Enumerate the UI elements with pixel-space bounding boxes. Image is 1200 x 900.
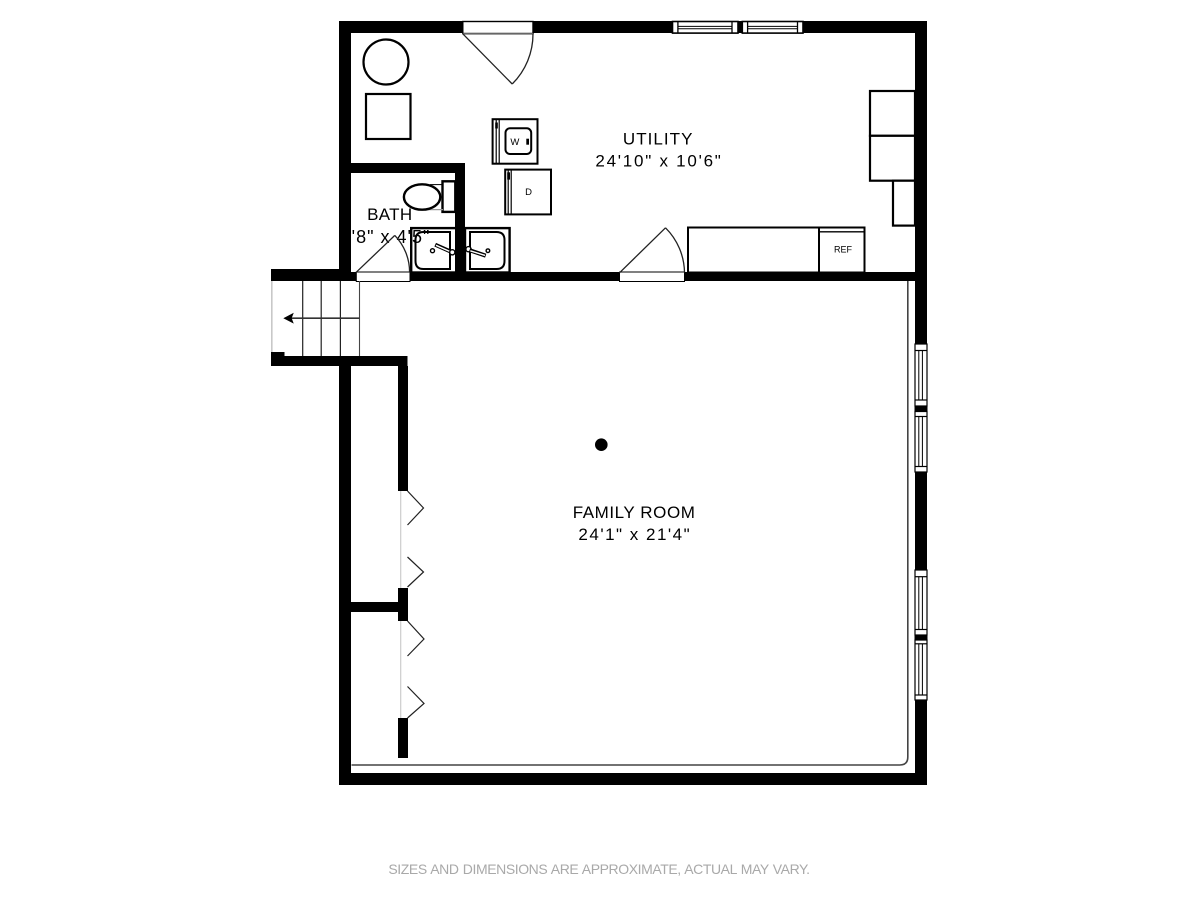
svg-text:REF: REF: [834, 245, 853, 255]
svg-text:FAMILY ROOM: FAMILY ROOM: [573, 503, 696, 522]
svg-text:D: D: [525, 187, 532, 198]
svg-text:W: W: [510, 137, 519, 148]
svg-text:SIZES AND DIMENSIONS ARE APPRO: SIZES AND DIMENSIONS ARE APPROXIMATE, AC…: [388, 861, 809, 877]
svg-text:BATH: BATH: [367, 205, 412, 224]
svg-text:UTILITY: UTILITY: [623, 130, 694, 149]
svg-text:24'10" x 10'6": 24'10" x 10'6": [595, 152, 722, 171]
svg-text:24'1" x 21'4": 24'1" x 21'4": [578, 525, 691, 544]
